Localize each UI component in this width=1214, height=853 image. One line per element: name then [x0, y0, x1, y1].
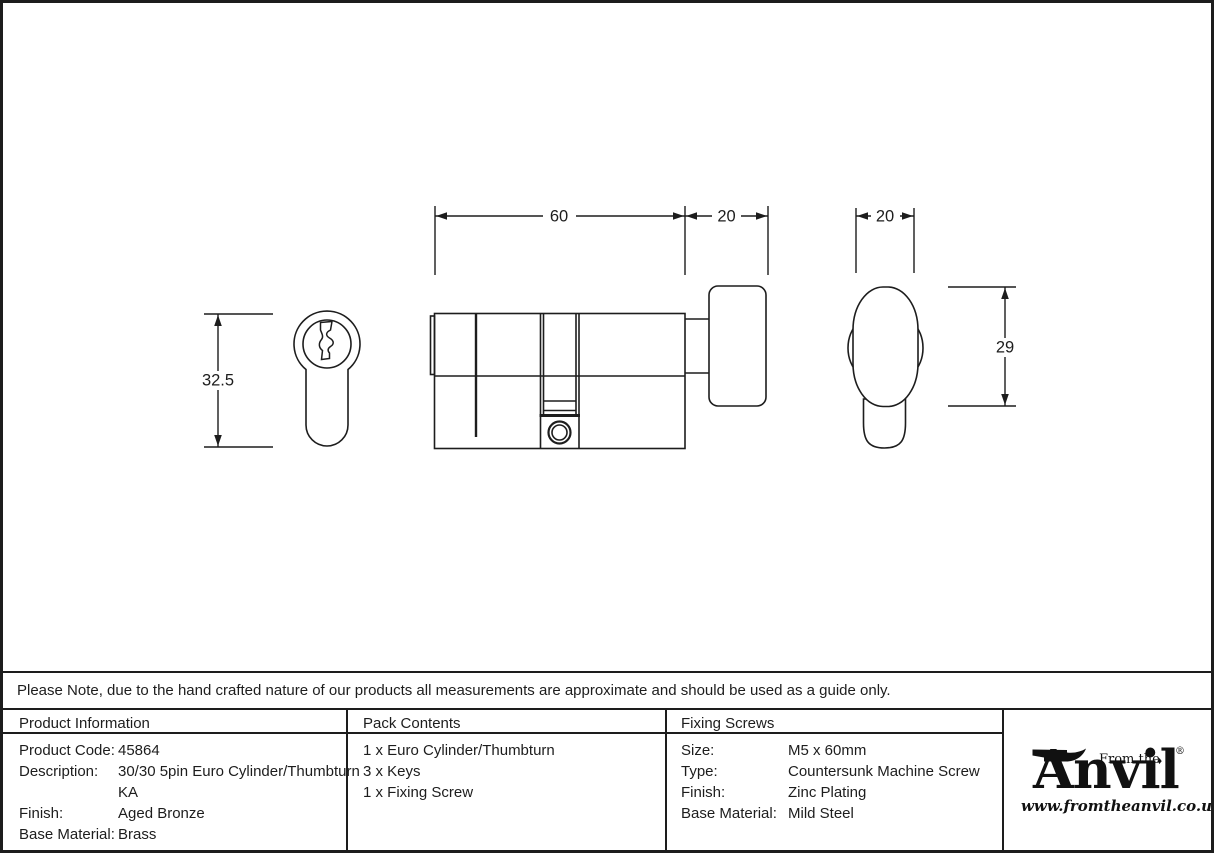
finish-label: Finish: — [19, 803, 63, 824]
pack-item: 3 x Keys — [363, 761, 421, 782]
front-view-drawing — [294, 311, 360, 446]
dim-thumbturn-width: 20 — [856, 207, 914, 273]
product-code-label: Product Code: — [19, 740, 115, 761]
dim-label-20-end: 20 — [876, 208, 894, 226]
base-material-value: Brass — [118, 824, 156, 845]
screw-material-value: Mild Steel — [788, 803, 854, 824]
keyhole-slot — [319, 322, 333, 360]
anvil-icon — [1031, 747, 1087, 764]
screw-type-value: Countersunk Machine Screw — [788, 761, 980, 782]
dim-thumbturn-height: 29 — [948, 287, 1023, 406]
description-label: Description: — [19, 761, 98, 782]
column-divider-3 — [1002, 710, 1004, 853]
dim-cylinder-length: 60 20 — [435, 206, 768, 275]
dim-label-32-5: 32.5 — [202, 372, 234, 390]
screw-finish-value: Zinc Plating — [788, 782, 866, 803]
pack-contents-header: Pack Contents — [363, 713, 461, 734]
header-underline — [3, 732, 1002, 734]
screw-size-value: M5 x 60mm — [788, 740, 866, 761]
logo-url: www.fromtheanvil.co.uk — [1021, 797, 1201, 815]
thumbturn-neck — [685, 319, 709, 373]
end-view-drawing — [848, 287, 923, 448]
column-divider-2 — [665, 710, 667, 853]
dim-label-29: 29 — [996, 339, 1014, 357]
thumbturn-knob-end — [853, 287, 918, 407]
thumbturn-knob-side — [709, 286, 766, 406]
screw-finish-label: Finish: — [681, 782, 725, 803]
screw-size-label: Size: — [681, 740, 714, 761]
anvil-logo: Anvil From the ♦ ® www.fromtheanvil.co.u… — [1033, 744, 1189, 820]
product-code-value: 45864 — [118, 740, 160, 761]
cylinder-body — [435, 314, 686, 449]
dim-cylinder-height: 32.5 — [194, 314, 273, 447]
product-spec-sheet: 60 20 20 32.5 29 — [0, 0, 1214, 853]
screw-type-label: Type: — [681, 761, 718, 782]
note-bar: Please Note, due to the hand crafted nat… — [3, 671, 1211, 710]
screw-material-label: Base Material: — [681, 803, 777, 824]
cylinder-plug — [303, 320, 351, 368]
product-info-header: Product Information — [19, 713, 150, 734]
registered-mark: ® — [1175, 746, 1185, 757]
diamond-icon: ♦ — [1157, 756, 1162, 767]
pack-item: 1 x Euro Cylinder/Thumbturn — [363, 740, 555, 761]
base-material-label: Base Material: — [19, 824, 115, 845]
note-text: Please Note, due to the hand crafted nat… — [17, 682, 891, 699]
finish-value: Aged Bronze — [118, 803, 205, 824]
dim-label-20-side: 20 — [717, 208, 735, 226]
logo-tagline: From the — [1099, 752, 1160, 767]
dim-label-60: 60 — [550, 208, 568, 226]
fixing-screws-header: Fixing Screws — [681, 713, 774, 734]
side-view-drawing — [431, 286, 767, 449]
description-value: 30/30 5pin Euro Cylinder/Thumbturn KA — [118, 761, 360, 803]
pack-item: 1 x Fixing Screw — [363, 782, 473, 803]
technical-drawing: 60 20 20 32.5 29 — [3, 3, 1214, 671]
cylinder-profile-outline — [294, 311, 360, 446]
